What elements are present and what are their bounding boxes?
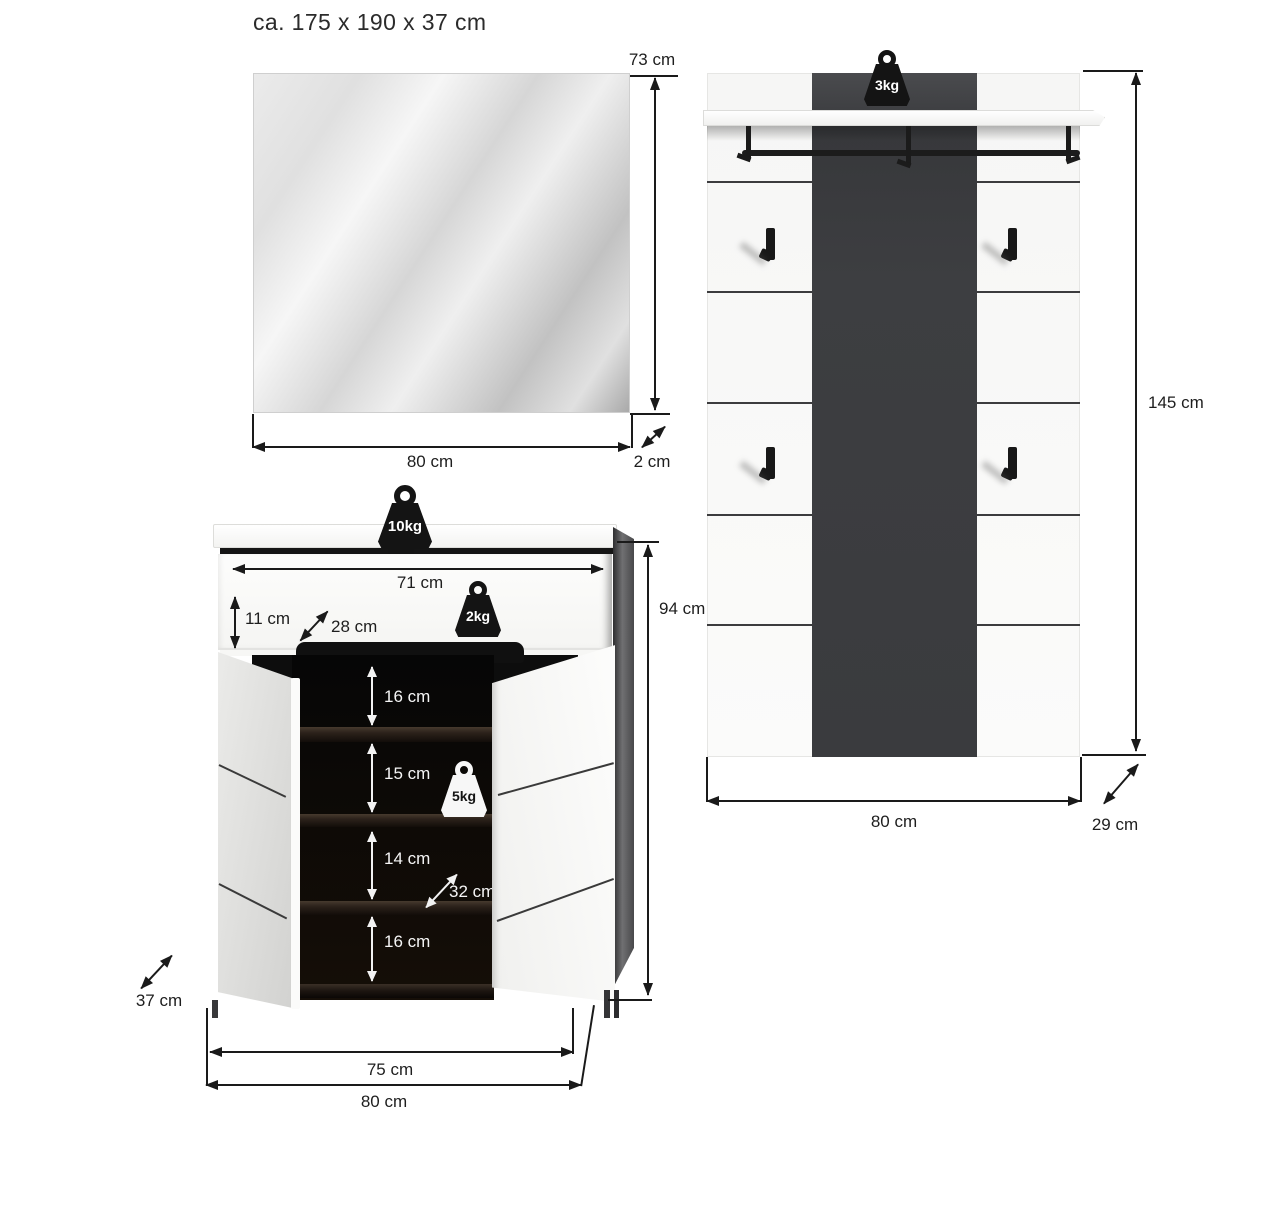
cabinet-height-ext-bottom <box>608 999 652 1001</box>
gap3-dim <box>371 832 373 899</box>
panel-width-dim <box>707 800 1080 802</box>
cabinet-side-panel <box>613 527 634 988</box>
inner-width-bottom-label: 75 cm <box>353 1060 427 1080</box>
cabinet-height-dim <box>647 545 649 995</box>
inner-width-bottom-dim <box>210 1051 573 1053</box>
weight-2kg-icon: 2kg <box>455 581 501 637</box>
panel-height-dim <box>1135 73 1137 751</box>
cabinet-height-label: 94 cm <box>659 599 705 619</box>
panel-groove <box>977 291 1080 293</box>
panel-capacity-label: 3kg <box>875 77 899 93</box>
cabinet-ext-bl <box>206 1008 208 1086</box>
furniture-dimension-diagram: ca. 175 x 190 x 37 cm 73 cm 80 cm 2 cm 3… <box>0 0 1280 1209</box>
cabinet-ext-br80 <box>580 1005 595 1086</box>
mirror-depth-label: 2 cm <box>618 452 686 472</box>
cabinet-right-door <box>492 640 615 1002</box>
inner-width-label: 71 cm <box>384 573 456 593</box>
top-capacity-label: 10kg <box>388 518 422 535</box>
cabinet-foot <box>614 990 619 1018</box>
mirror <box>253 73 630 413</box>
cabinet-width-dim <box>206 1084 581 1086</box>
rail-post-center <box>906 126 911 164</box>
panel-depth-label: 29 cm <box>1080 815 1150 835</box>
gap3-label: 14 cm <box>384 849 430 869</box>
cabinet-left-door-edge <box>291 678 300 1009</box>
panel-groove <box>707 624 812 626</box>
gap1-label: 16 cm <box>384 687 430 707</box>
panel-groove <box>707 291 812 293</box>
interior-shelf <box>292 901 494 915</box>
drawer-height-label: 11 cm <box>245 609 290 629</box>
coat-hook-icon <box>1008 447 1017 479</box>
overall-dimensions-title: ca. 175 x 190 x 37 cm <box>253 12 486 32</box>
panel-depth-dim <box>1103 764 1139 805</box>
drawer-capacity-label: 2kg <box>466 608 490 624</box>
panel-hanging-rail <box>742 150 1080 156</box>
drawer-depth-label: 28 cm <box>331 617 377 637</box>
wardrobe-panel-dark-stripe <box>812 73 977 757</box>
cabinet-left-door <box>218 652 292 1010</box>
panel-groove <box>977 402 1080 404</box>
inner-width-dim <box>233 568 603 570</box>
drawer-height-dim <box>234 597 236 648</box>
weight-10kg-icon: 10kg <box>378 485 432 549</box>
coat-hook-icon <box>1008 228 1017 260</box>
mirror-width-dim <box>253 446 630 448</box>
gap2-dim <box>371 744 373 812</box>
panel-shelf-shadow <box>707 125 1080 141</box>
weight-5kg-icon: 5kg <box>441 761 487 817</box>
panel-height-label: 145 cm <box>1148 393 1204 413</box>
panel-ext-bottom <box>1082 754 1146 756</box>
cabinet-height-ext-top <box>617 541 659 543</box>
mirror-depth-dim <box>641 426 665 448</box>
cabinet-foot <box>212 1000 218 1018</box>
cabinet-depth-label: 37 cm <box>126 991 192 1011</box>
inner-depth-label: 32 cm <box>449 882 495 902</box>
mirror-height-label: 73 cm <box>619 50 685 70</box>
panel-shelf <box>703 110 1105 126</box>
mirror-height-dim <box>654 78 656 410</box>
mirror-ext-right <box>631 414 633 448</box>
shelf-capacity-label: 5kg <box>452 788 476 804</box>
rail-post-left <box>746 126 751 158</box>
interior-shelf <box>292 727 494 742</box>
gap2-label: 15 cm <box>384 764 430 784</box>
mirror-ext-bottom <box>630 413 670 415</box>
gap1-dim <box>371 667 373 725</box>
gap4-label: 16 cm <box>384 932 430 952</box>
panel-groove <box>977 181 1080 183</box>
panel-groove <box>707 402 812 404</box>
panel-groove <box>707 514 812 516</box>
panel-groove <box>977 624 1080 626</box>
cabinet-depth-dim <box>140 955 172 989</box>
coat-hook-icon <box>766 228 775 260</box>
interior-floor <box>292 984 494 998</box>
panel-groove <box>707 181 812 183</box>
gap4-dim <box>371 917 373 981</box>
panel-width-label: 80 cm <box>857 812 931 832</box>
rail-post-right <box>1066 126 1071 160</box>
cabinet-width-label: 80 cm <box>347 1092 421 1112</box>
coat-hook-icon <box>766 447 775 479</box>
cabinet-foot <box>604 990 610 1018</box>
weight-3kg-icon: 3kg <box>864 50 910 106</box>
mirror-width-label: 80 cm <box>393 452 467 472</box>
panel-groove <box>977 514 1080 516</box>
